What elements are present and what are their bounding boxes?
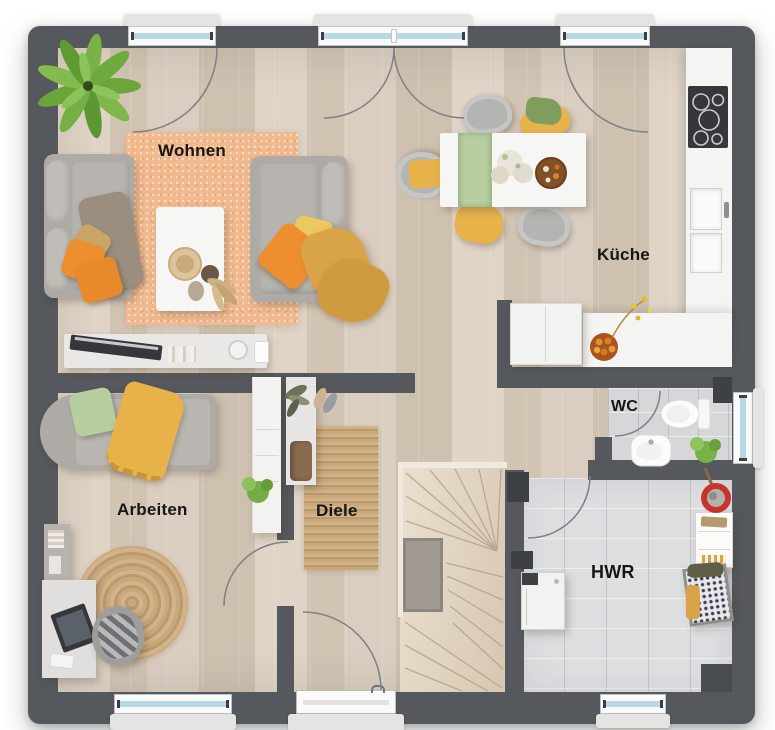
wc-corner-block: [713, 377, 732, 403]
kitchen-counter-bottom: [583, 313, 732, 367]
sofa-back-cushion: [46, 160, 70, 224]
laundry-cloth-olive: [687, 562, 724, 578]
window-sill: [314, 14, 472, 26]
room-label-arbeiten: Arbeiten: [117, 500, 188, 520]
hall-console: [286, 377, 316, 485]
wardrobe-seam: [255, 481, 279, 482]
pillow-green: [68, 386, 118, 438]
dining-table: [440, 133, 586, 207]
entrance-step: [288, 714, 404, 730]
shelf-item-wood: [701, 516, 727, 527]
decor-dish: [228, 340, 248, 360]
appliance-seam: [545, 306, 546, 362]
window-sill: [556, 14, 654, 26]
window-glass: [606, 701, 660, 707]
washer-panel: [522, 573, 538, 585]
hwr-door-jamb: [507, 472, 529, 502]
wall-arbeiten-diele-lower: [277, 606, 294, 692]
laundry-cloth-yellow: [686, 585, 700, 619]
washer-seam: [526, 589, 527, 625]
hwr-niche: [701, 664, 732, 692]
window-sill: [124, 14, 220, 26]
desk: [42, 580, 96, 678]
room-label-wohnen: Wohnen: [158, 141, 226, 161]
wardrobe-seam: [255, 429, 279, 430]
coffee-table: [156, 207, 224, 311]
books: [48, 530, 64, 548]
tv-sideboard: [64, 334, 267, 368]
sofa-left: [44, 154, 134, 298]
window-living-1: [128, 26, 216, 46]
wall-wc-left-stub: [595, 437, 612, 465]
shelf-line: [698, 549, 730, 550]
washer-knob: [554, 579, 559, 584]
cooktop: [688, 86, 728, 148]
kitchen-sink-basin: [690, 188, 722, 230]
office-shelf: [44, 524, 70, 582]
window-sill: [753, 388, 763, 468]
kitchen-sink-basin: [690, 233, 722, 273]
entrance-door: [296, 690, 396, 714]
room-label-hwr: HWR: [591, 562, 635, 583]
keyboard: [49, 653, 74, 669]
window-sill: [596, 714, 670, 728]
floor-plan: Wohnen Küche Arbeiten Diele WC HWR: [0, 0, 775, 730]
wall-mid-right: [497, 367, 732, 388]
window-wc: [733, 392, 753, 464]
daybed: [40, 394, 216, 470]
monitor: [50, 603, 98, 653]
sofa-back-cushion: [322, 162, 346, 228]
wardrobe-seam: [255, 455, 279, 456]
window-glass: [566, 33, 644, 39]
window-glass: [740, 398, 746, 458]
decor-box: [254, 341, 269, 363]
shelf-line: [698, 531, 730, 532]
room-label-kueche: Küche: [597, 245, 650, 265]
blanket-mustard-draped: [302, 226, 388, 324]
wall-mid-left: [58, 373, 415, 393]
hall-chair: [290, 441, 312, 481]
window-glass: [134, 33, 210, 39]
window-office: [114, 694, 232, 714]
hwr-shelf: [695, 512, 733, 568]
chair-cushion-striped: [94, 610, 143, 663]
throw-blanket-yellow: [103, 379, 188, 484]
window-mullion: [391, 29, 397, 43]
office-wardrobe: [252, 377, 281, 533]
window-living-double: [318, 26, 468, 46]
door-handle: [371, 685, 385, 693]
side-door-handle: [724, 202, 729, 218]
stair-landing-mat: [403, 538, 443, 612]
tv-soundbar: [75, 337, 159, 350]
tv-flatscreen: [69, 334, 162, 360]
books: [49, 556, 61, 574]
books-stack: [168, 346, 196, 362]
room-label-wc: WC: [611, 398, 638, 416]
window-glass: [120, 701, 226, 707]
laundry-basket: [682, 563, 734, 627]
hwr-wall-box: [511, 551, 533, 569]
window-sill: [110, 714, 236, 730]
monitor-screen: [56, 609, 93, 647]
table-runner-green: [458, 133, 492, 207]
window-kitchen: [560, 26, 650, 46]
room-label-diele: Diele: [316, 501, 358, 521]
washing-machine: [521, 572, 565, 630]
window-hwr: [600, 694, 666, 714]
kitchen-appliance: [510, 303, 582, 365]
desk-chair: [92, 606, 144, 666]
door-panel-line: [303, 700, 389, 705]
stair-trim-top: [398, 462, 507, 468]
